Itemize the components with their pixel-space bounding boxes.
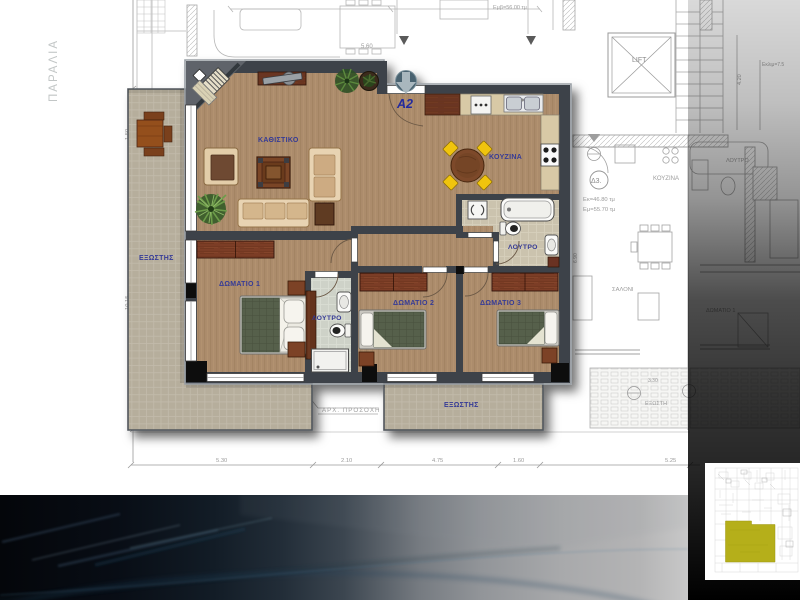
svg-text:Εμβ=56.00 τμ: Εμβ=56.00 τμ <box>493 5 527 11</box>
svg-text:5.30: 5.30 <box>216 458 227 464</box>
svg-text:ΕΞΩΣΤΗ: ΕΞΩΣΤΗ <box>645 401 667 407</box>
svg-text:ΠΑΡΑΛΙΑ: ΠΑΡΑΛΙΑ <box>48 39 60 102</box>
svg-text:1.60: 1.60 <box>513 458 524 464</box>
svg-text:ΔΩΜΑΤΙΟ 2: ΔΩΜΑΤΙΟ 2 <box>393 300 434 307</box>
svg-text:Εκ=46.80 τμ: Εκ=46.80 τμ <box>583 197 615 203</box>
svg-text:3.30: 3.30 <box>648 378 658 384</box>
svg-text:ΕΞΩΣΤΗΣ: ΕΞΩΣΤΗΣ <box>139 255 174 262</box>
svg-text:A2: A2 <box>396 97 413 111</box>
svg-text:5.60: 5.60 <box>361 44 373 50</box>
svg-text:ΔΩΜΑΤΙΟ 1: ΔΩΜΑΤΙΟ 1 <box>219 281 260 288</box>
svg-text:ΚΟΥΖΙΝΑ: ΚΟΥΖΙΝΑ <box>489 154 522 161</box>
svg-text:6.90: 6.90 <box>573 253 579 263</box>
svg-text:ΚΑΘΙΣΤΙΚΟ: ΚΑΘΙΣΤΙΚΟ <box>258 137 299 144</box>
svg-text:2.10: 2.10 <box>341 458 352 464</box>
svg-text:ΛΟΥΤΡΟ: ΛΟΥΤΡΟ <box>312 315 342 322</box>
svg-text:ΛΟΥΤΡΟ: ΛΟΥΤΡΟ <box>508 244 538 251</box>
svg-text:ΚΟΥΖΙΝΑ: ΚΟΥΖΙΝΑ <box>653 176 679 182</box>
svg-text:LIFT: LIFT <box>632 57 647 64</box>
svg-text:5.25: 5.25 <box>665 458 676 464</box>
svg-text:ΕΞΩΣΤΗΣ: ΕΞΩΣΤΗΣ <box>444 402 479 409</box>
svg-text:Εμ=55.70 τμ: Εμ=55.70 τμ <box>583 207 615 213</box>
svg-text:4.75: 4.75 <box>432 458 443 464</box>
svg-text:ΔΩΜΑΤΙΟ 3: ΔΩΜΑΤΙΟ 3 <box>480 300 521 307</box>
svg-text:ΑΡΧ. ΠΡΟΣΟΧΗ: ΑΡΧ. ΠΡΟΣΟΧΗ <box>322 407 380 414</box>
svg-text:ΣΑΛΟΝΙ: ΣΑΛΟΝΙ <box>612 287 634 293</box>
svg-text:Δ3.: Δ3. <box>591 178 602 185</box>
